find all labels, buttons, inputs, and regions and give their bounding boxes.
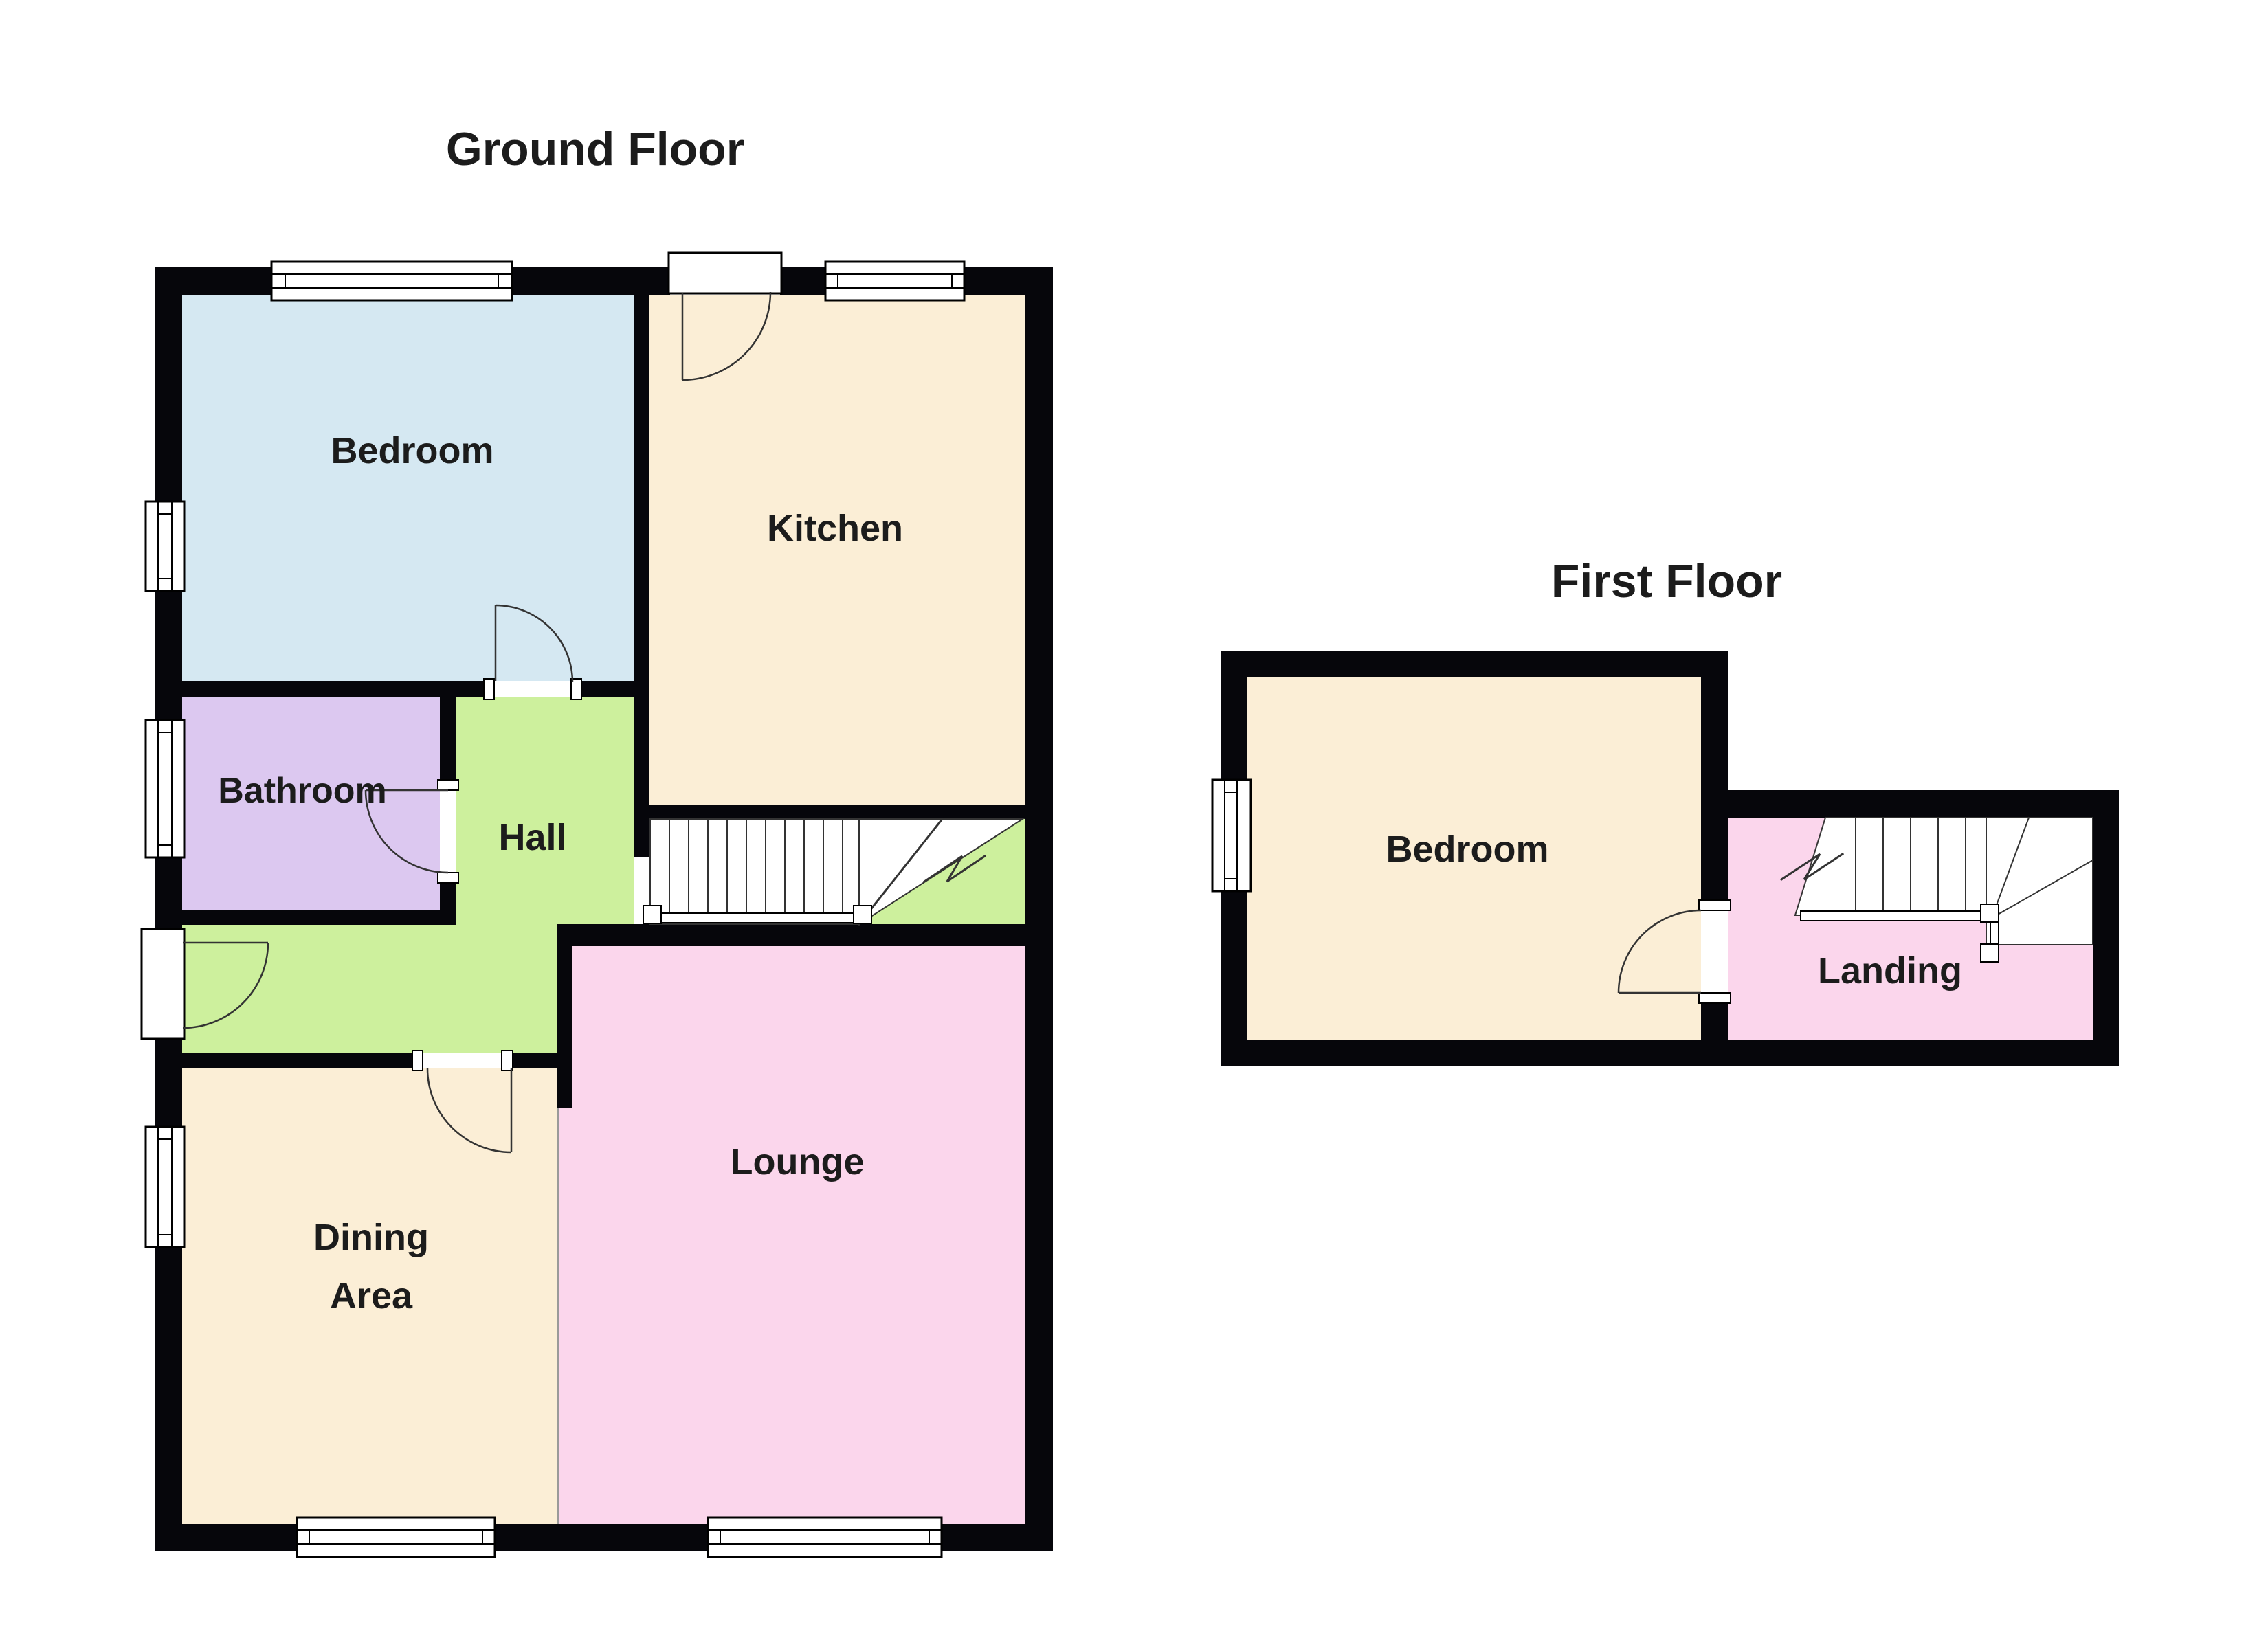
- divider-dining-lounge: [557, 1108, 559, 1524]
- wall-segment: [1221, 651, 1728, 677]
- newel-post: [854, 906, 871, 923]
- wall-segment: [155, 1037, 182, 1127]
- stair-flight: [650, 819, 859, 924]
- room-lounge: [559, 946, 1025, 1524]
- room-hall-entry: [182, 910, 456, 1053]
- wall-kitchen-bottom: [634, 805, 1025, 819]
- label-lounge: Lounge: [731, 1141, 865, 1182]
- wall-bathroom-bottom: [165, 910, 440, 925]
- wall-segment: [155, 591, 182, 720]
- label-kitchen: Kitchen: [767, 508, 903, 549]
- wall-segment: [1221, 1040, 2119, 1066]
- window-dining-bottom: [297, 1518, 495, 1557]
- wall-lounge-top: [557, 924, 1025, 946]
- wall-stair-stub: [634, 819, 649, 857]
- newel-post: [1981, 904, 1999, 922]
- wall-bedroom-landing: [1701, 677, 1728, 900]
- label-dining-line2: Area: [330, 1275, 413, 1316]
- newel-post: [1981, 944, 1999, 962]
- wall-hall-bottom: [165, 1053, 412, 1068]
- label-landing: Landing: [1818, 950, 1962, 991]
- title-first-floor: First Floor: [1551, 555, 1782, 607]
- wall-segment: [155, 1524, 297, 1551]
- label-hall: Hall: [498, 817, 566, 858]
- floorplan-page: Ground Floor First Floor Bedroom Kitchen…: [0, 0, 2268, 1649]
- label-dining-line1: Dining: [313, 1217, 429, 1258]
- window-bedroom-gf: [271, 262, 512, 300]
- room-bedroom-gf: [182, 295, 634, 681]
- wall-segment: [1025, 267, 1053, 1551]
- label-bedroom-gf: Bedroom: [331, 430, 493, 471]
- wall-bedroom-kitchen: [634, 295, 649, 805]
- label-bathroom: Bathroom: [218, 771, 387, 811]
- wall-segment: [1221, 651, 1247, 780]
- title-ground-floor: Ground Floor: [446, 123, 744, 175]
- wall-segment: [1221, 891, 1247, 1066]
- room-hall-upper: [456, 697, 634, 924]
- window-kitchen: [825, 262, 964, 300]
- floorplan-drawing: Ground Floor First Floor Bedroom Kitchen…: [0, 0, 2268, 1649]
- wall-bedroom-bottom: [182, 681, 484, 697]
- wall-segment: [155, 267, 182, 502]
- wall-segment: [155, 1247, 182, 1551]
- label-bedroom-ff: Bedroom: [1386, 829, 1548, 870]
- wall-lounge-left: [557, 946, 572, 1108]
- stair-winder: [1986, 818, 2093, 945]
- window-bedroom-gf-left: [146, 502, 184, 591]
- wall-segment: [510, 267, 670, 295]
- stair-handrail: [1990, 922, 1999, 944]
- newel-post: [643, 906, 661, 923]
- wall-hall-bottom: [513, 1053, 557, 1068]
- room-kitchen: [649, 295, 1025, 805]
- wall-segment: [495, 1524, 708, 1551]
- window-lounge: [708, 1518, 942, 1557]
- window-bathroom: [146, 720, 184, 857]
- window-bedroom-ff: [1212, 780, 1251, 891]
- wall-bedroom-bottom: [581, 681, 634, 697]
- wall-bedroom-landing: [1701, 1003, 1728, 1040]
- wall-segment: [780, 267, 827, 295]
- stair-handrail: [1801, 911, 1985, 921]
- ground-floor-rooms: [182, 295, 1025, 1524]
- window-dining-left: [146, 1127, 184, 1247]
- wall-segment: [2093, 790, 2119, 1066]
- wall-landing-top: [1728, 790, 2119, 818]
- wall-bathroom-right: [440, 697, 456, 780]
- stair-handrail: [653, 913, 860, 923]
- wall-bathroom-right: [440, 883, 456, 925]
- room-hall-corridor: [456, 924, 557, 1053]
